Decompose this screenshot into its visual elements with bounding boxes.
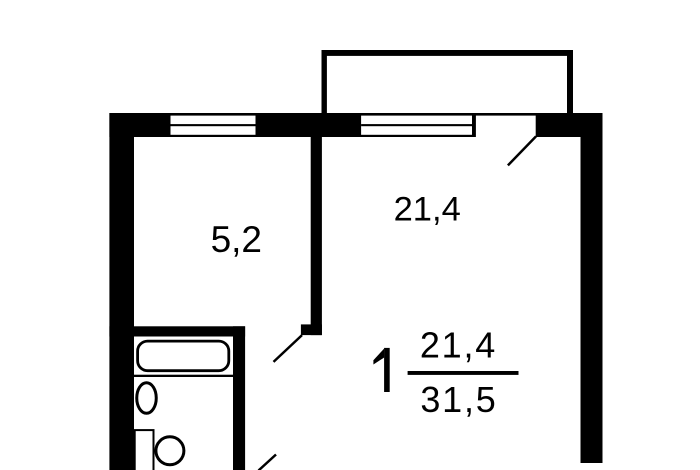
- svg-text:31,5: 31,5: [420, 379, 497, 420]
- svg-text:21,4: 21,4: [394, 191, 461, 229]
- svg-text:5,2: 5,2: [211, 219, 262, 260]
- svg-text:21,4: 21,4: [420, 325, 497, 366]
